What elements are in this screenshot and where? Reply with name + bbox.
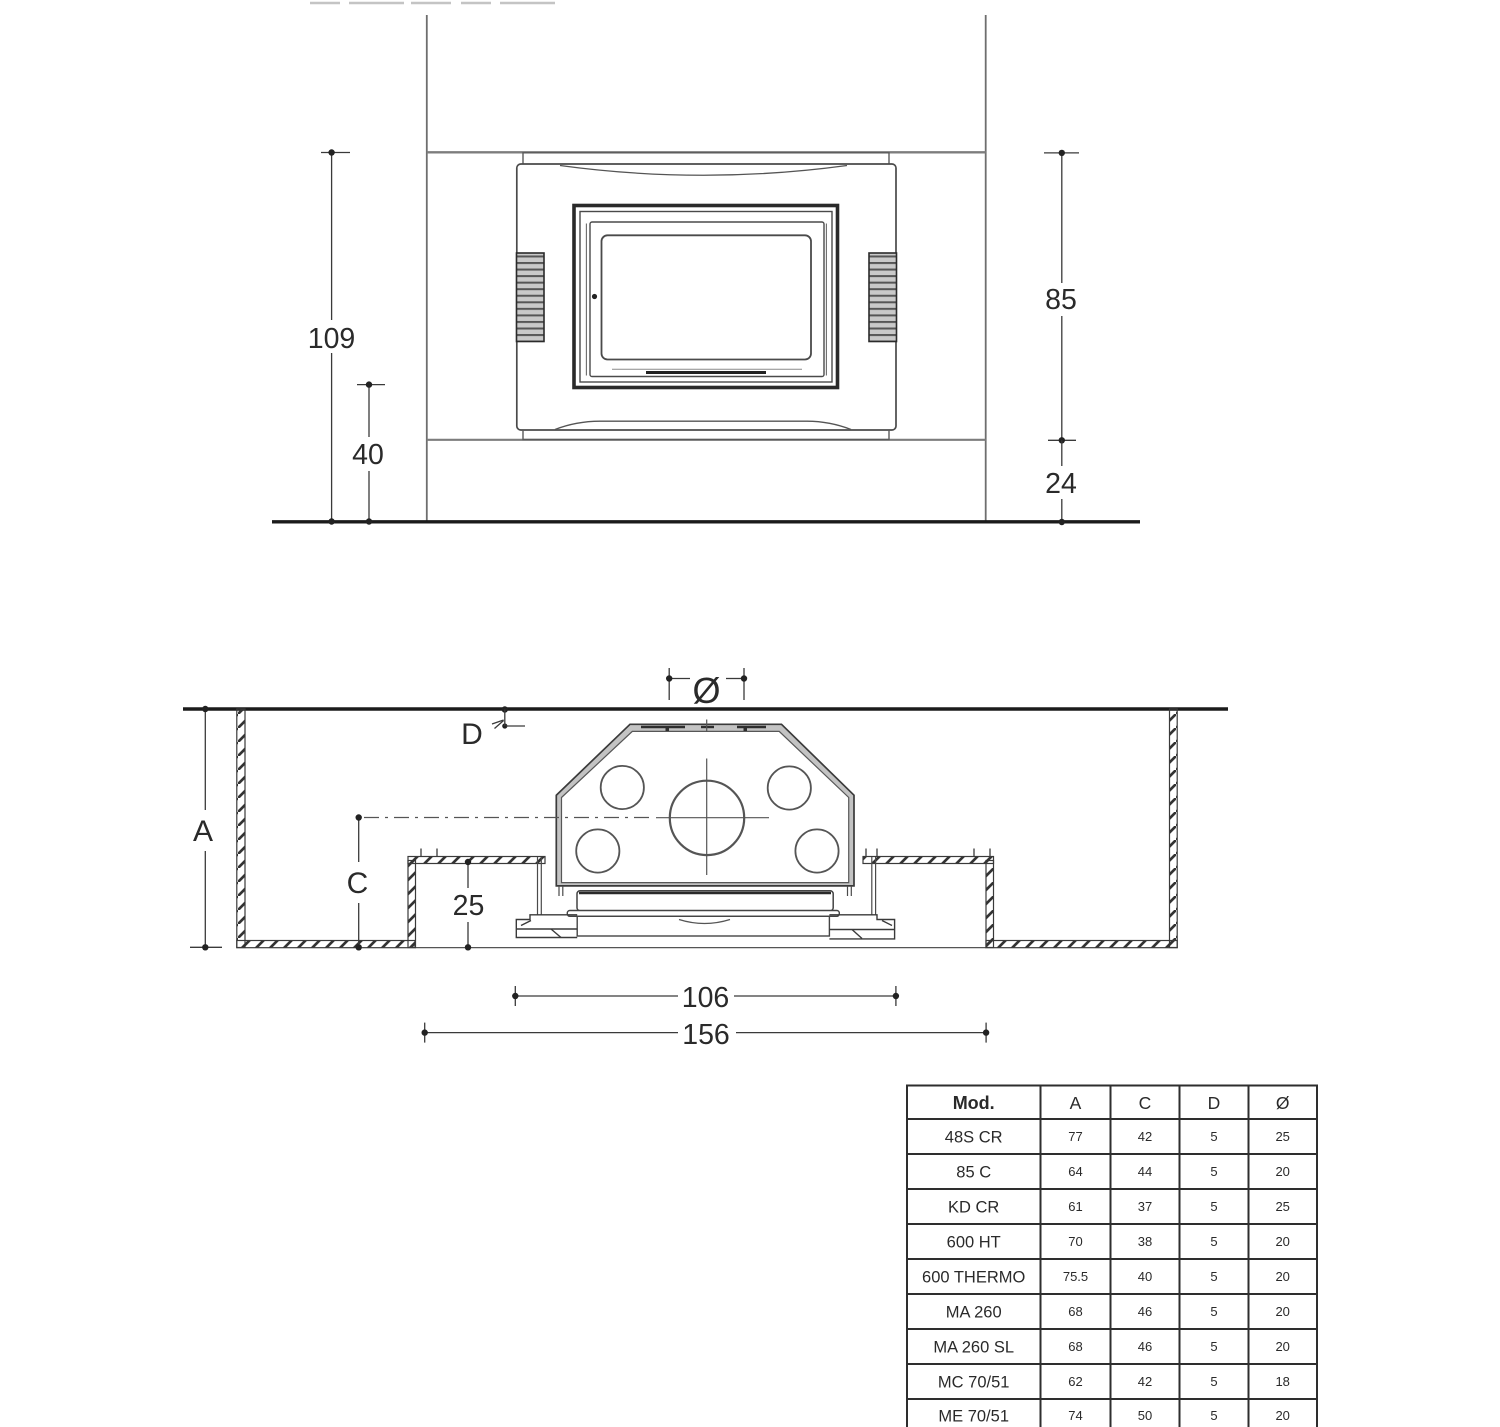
svg-text:MA 260 SL: MA 260 SL (933, 1339, 1014, 1357)
svg-text:38: 38 (1138, 1234, 1152, 1249)
svg-text:42: 42 (1138, 1374, 1152, 1389)
svg-text:MA 260: MA 260 (946, 1304, 1002, 1322)
svg-text:ME 70/51: ME 70/51 (938, 1408, 1009, 1426)
svg-text:5: 5 (1210, 1339, 1217, 1354)
svg-text:106: 106 (682, 982, 730, 1014)
svg-text:5: 5 (1210, 1269, 1217, 1284)
svg-text:62: 62 (1068, 1374, 1082, 1389)
svg-text:77: 77 (1068, 1129, 1082, 1144)
svg-text:46: 46 (1138, 1304, 1152, 1319)
svg-text:18: 18 (1275, 1374, 1289, 1389)
svg-text:C: C (1139, 1093, 1152, 1113)
svg-text:20: 20 (1275, 1304, 1289, 1319)
svg-text:20: 20 (1275, 1408, 1289, 1423)
svg-text:25: 25 (1275, 1129, 1289, 1144)
svg-text:50: 50 (1138, 1408, 1152, 1423)
svg-text:5: 5 (1210, 1199, 1217, 1214)
svg-text:MC 70/51: MC 70/51 (938, 1374, 1010, 1392)
svg-text:5: 5 (1210, 1304, 1217, 1319)
svg-text:25: 25 (453, 890, 485, 922)
svg-text:D: D (1208, 1093, 1221, 1113)
svg-text:70: 70 (1068, 1234, 1082, 1249)
svg-text:A: A (193, 815, 213, 848)
svg-text:68: 68 (1068, 1339, 1082, 1354)
svg-text:D: D (461, 718, 483, 751)
svg-text:48S CR: 48S CR (945, 1129, 1003, 1147)
svg-text:5: 5 (1210, 1374, 1217, 1389)
svg-text:KD CR: KD CR (948, 1199, 999, 1217)
svg-text:C: C (347, 867, 369, 900)
svg-text:20: 20 (1275, 1164, 1289, 1179)
svg-text:Ø: Ø (1276, 1093, 1290, 1113)
svg-text:156: 156 (682, 1019, 730, 1051)
svg-text:5: 5 (1210, 1408, 1217, 1423)
svg-text:75.5: 75.5 (1063, 1269, 1088, 1284)
svg-text:64: 64 (1068, 1164, 1082, 1179)
svg-text:20: 20 (1275, 1269, 1289, 1284)
svg-text:24: 24 (1045, 468, 1077, 500)
svg-text:85: 85 (1045, 284, 1077, 316)
svg-text:5: 5 (1210, 1129, 1217, 1144)
svg-text:68: 68 (1068, 1304, 1082, 1319)
svg-text:5: 5 (1210, 1164, 1217, 1179)
svg-text:85 C: 85 C (956, 1164, 991, 1182)
svg-text:A: A (1070, 1093, 1082, 1113)
svg-text:109: 109 (308, 323, 356, 355)
svg-text:Ø: Ø (692, 670, 720, 711)
svg-text:61: 61 (1068, 1199, 1082, 1214)
svg-text:20: 20 (1275, 1234, 1289, 1249)
svg-text:600 THERMO: 600 THERMO (922, 1269, 1025, 1287)
svg-text:40: 40 (352, 439, 384, 471)
svg-text:42: 42 (1138, 1129, 1152, 1144)
svg-text:44: 44 (1138, 1164, 1152, 1179)
svg-text:25: 25 (1275, 1199, 1289, 1214)
svg-text:600 HT: 600 HT (947, 1234, 1001, 1252)
svg-text:46: 46 (1138, 1339, 1152, 1354)
svg-text:5: 5 (1210, 1234, 1217, 1249)
svg-text:40: 40 (1138, 1269, 1152, 1284)
svg-text:Mod.: Mod. (953, 1093, 995, 1113)
svg-text:20: 20 (1275, 1339, 1289, 1354)
svg-text:37: 37 (1138, 1199, 1152, 1214)
svg-text:74: 74 (1068, 1408, 1082, 1423)
